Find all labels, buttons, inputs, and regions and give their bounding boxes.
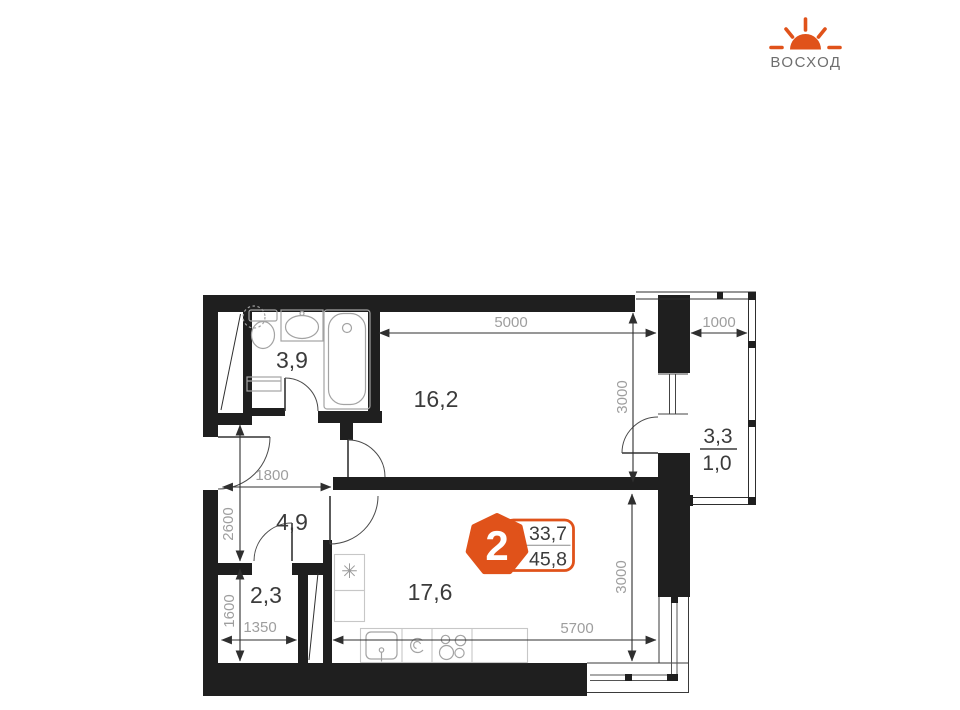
floor-plan-page: ВОСХОД <box>0 0 960 710</box>
unit-badge: 33,7 45,8 2 <box>468 516 573 572</box>
kitchen-door <box>330 496 378 544</box>
dim-bedroom-depth: 3000 <box>614 380 631 413</box>
dim-balcony-width: 1000 <box>702 314 735 331</box>
dim-bedroom-width: 5000 <box>494 314 527 331</box>
kitchen-sink-icon <box>366 632 397 662</box>
corner-windows <box>587 597 689 693</box>
room-label-bathroom: 3,9 <box>276 347 308 373</box>
vent-spiral-icon <box>411 639 423 653</box>
badge-living-area: 33,7 <box>529 523 567 545</box>
balcony-glazing <box>636 292 756 506</box>
balcony-window <box>658 374 688 414</box>
balcony-door <box>622 417 658 453</box>
balcony-area-reduced: 1,0 <box>702 452 731 475</box>
fridge-star-icon: ✳ <box>341 561 358 583</box>
balcony-area-full: 3,3 <box>703 425 732 448</box>
dim-wardrobe-depth: 1600 <box>221 594 238 627</box>
dim-wardrobe-width: 1350 <box>243 619 276 636</box>
bedroom-door <box>348 440 385 477</box>
dim-kitchen-depth: 3000 <box>613 560 630 593</box>
room-label-kitchen: 17,6 <box>408 579 453 605</box>
room-label-balcony: 3,3 1,0 <box>700 425 737 475</box>
dim-kitchen-width: 5700 <box>560 620 593 637</box>
room-label-wardrobe: 2,3 <box>250 582 282 608</box>
bathtub-icon <box>324 310 370 409</box>
badge-total-area: 45,8 <box>529 549 567 571</box>
dim-hallway-width: 1800 <box>255 467 288 484</box>
brand-logo: ВОСХОД <box>770 19 841 71</box>
washbasin-icon <box>281 310 323 341</box>
brand-name: ВОСХОД <box>770 54 841 71</box>
room-label-hallway: 4,9 <box>276 509 308 535</box>
stove-icon <box>440 635 466 659</box>
bathroom-door <box>285 378 318 411</box>
dim-hallway-depth: 2600 <box>220 507 237 540</box>
floor-plan: ВОСХОД <box>0 0 960 710</box>
room-label-bedroom: 16,2 <box>414 386 459 412</box>
washing-machine-icon <box>247 377 281 391</box>
badge-rooms-count: 2 <box>485 522 508 569</box>
sunrise-icon <box>771 19 840 50</box>
